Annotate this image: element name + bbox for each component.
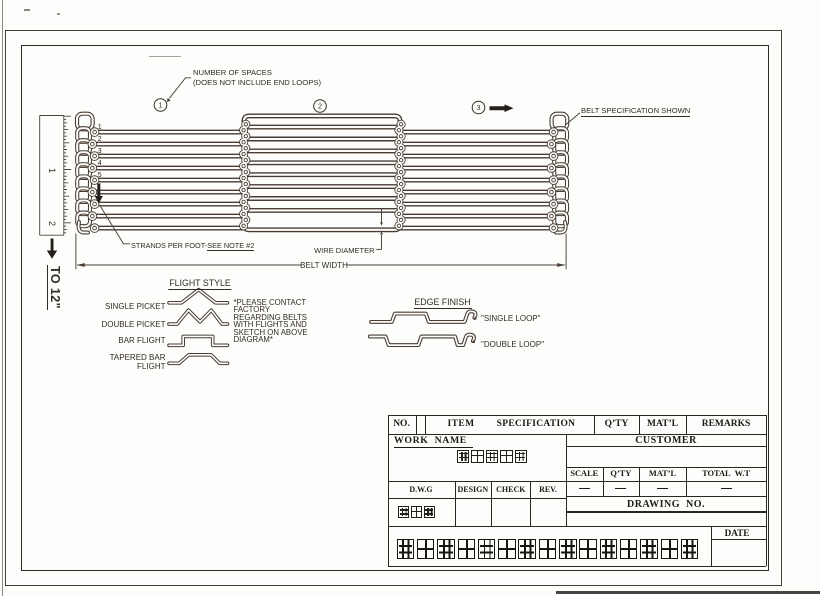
svg-text:3: 3 — [98, 148, 102, 155]
svg-text:1: 1 — [98, 124, 102, 131]
svg-text:5: 5 — [98, 172, 102, 179]
svg-text:4: 4 — [98, 160, 102, 167]
svg-text:3: 3 — [477, 103, 481, 112]
svg-text:2: 2 — [98, 136, 102, 143]
svg-text:2: 2 — [318, 102, 322, 111]
svg-text:1: 1 — [159, 101, 163, 110]
